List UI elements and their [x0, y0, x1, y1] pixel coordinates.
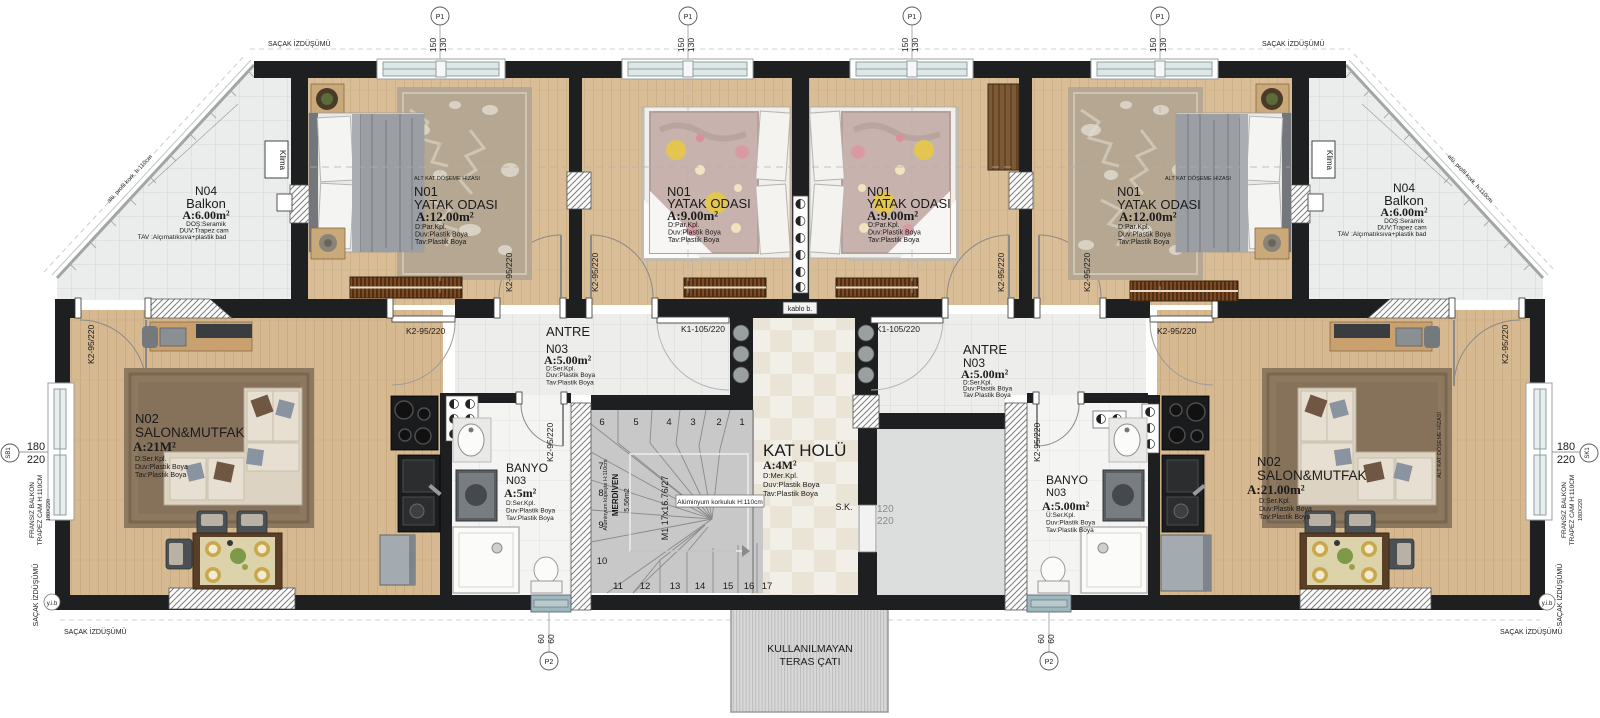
svg-text:ANTRE: ANTRE — [546, 324, 590, 339]
svg-text:K2-95/220: K2-95/220 — [1157, 326, 1196, 336]
svg-text:Tav:Plastik Boya: Tav:Plastik Boya — [868, 237, 919, 244]
svg-text:15: 15 — [723, 581, 734, 592]
svg-text:60: 60 — [536, 634, 546, 644]
svg-text:A:6.00m²: A:6.00m² — [182, 208, 230, 222]
svg-text:180X220: 180X220 — [1578, 499, 1584, 521]
svg-text:SAÇAK İZDÜŞÜMÜ: SAÇAK İZDÜŞÜMÜ — [1262, 39, 1325, 48]
svg-text:120: 120 — [877, 504, 894, 515]
svg-text:K2-95/220: K2-95/220 — [1500, 325, 1510, 364]
svg-text:TAV :Alçımatıksıva+plastik bad: TAV :Alçımatıksıva+plastik bad — [138, 234, 227, 241]
svg-text:K2-95/220: K2-95/220 — [1082, 253, 1092, 292]
svg-text:TAV :Alçımatıksıva+plastik bad: TAV :Alçımatıksıva+plastik bad — [1338, 231, 1427, 238]
svg-text:S.K.: S.K. — [835, 502, 852, 512]
svg-text:Duv:Plastik Boya: Duv:Plastik Boya — [506, 508, 556, 515]
svg-text:Tav:Plastik Boya: Tav:Plastik Boya — [1046, 527, 1094, 534]
svg-text:SK1: SK1 — [1585, 447, 1591, 459]
svg-text:y.i.b: y.i.b — [1542, 601, 1553, 607]
svg-text:D:Ser.Kpl.: D:Ser.Kpl. — [135, 456, 167, 463]
svg-text:K1-105/220: K1-105/220 — [681, 324, 725, 334]
svg-text:14: 14 — [695, 581, 706, 592]
svg-text:KULLANILMAYAN: KULLANILMAYAN — [767, 643, 852, 655]
svg-text:D:Ser.Kpl.: D:Ser.Kpl. — [506, 500, 535, 507]
svg-text:220: 220 — [27, 454, 45, 466]
svg-text:SAÇAK İZDÜŞÜMÜ: SAÇAK İZDÜŞÜMÜ — [31, 564, 40, 627]
svg-text:Tav:Plastik Boya: Tav:Plastik Boya — [1259, 514, 1310, 521]
svg-text:Tav:Plastik Boya: Tav:Plastik Boya — [1118, 239, 1169, 246]
svg-text:P1: P1 — [908, 14, 917, 21]
svg-text:A:12.00m²: A:12.00m² — [1119, 209, 1177, 224]
svg-text:16: 16 — [744, 581, 755, 592]
svg-text:K2-95/220: K2-95/220 — [590, 253, 600, 292]
svg-text:10: 10 — [597, 556, 608, 567]
svg-text:TRAPEZ CAM H:110CM: TRAPEZ CAM H:110CM — [1569, 475, 1576, 546]
svg-text:ANTRE: ANTRE — [963, 342, 1007, 357]
svg-text:5.56m2: 5.56m2 — [624, 488, 631, 511]
svg-text:Duv:Plastik Boya: Duv:Plastik Boya — [1259, 506, 1312, 513]
svg-text:BANYO: BANYO — [506, 461, 548, 475]
svg-text:N02: N02 — [135, 411, 159, 426]
svg-text:130: 130 — [686, 38, 696, 52]
svg-text:D:Par.Kpl.: D:Par.Kpl. — [415, 224, 447, 231]
svg-text:6: 6 — [599, 417, 604, 428]
svg-text:A:4M²: A:4M² — [763, 458, 797, 472]
svg-text:11: 11 — [613, 581, 623, 592]
svg-text:Klima: Klima — [1325, 150, 1334, 171]
svg-text:13: 13 — [670, 581, 681, 592]
svg-text:SAÇAK İZDÜŞÜMÜ: SAÇAK İZDÜŞÜMÜ — [268, 39, 331, 48]
svg-text:SALON&MUTFAK: SALON&MUTFAK — [135, 425, 245, 440]
svg-text:Tav:Plastik Boya: Tav:Plastik Boya — [546, 380, 594, 387]
svg-text:N02: N02 — [1257, 454, 1281, 469]
svg-text:2: 2 — [716, 417, 721, 428]
svg-text:kablo b.: kablo b. — [788, 306, 813, 313]
svg-text:D:Mer.Kpl.: D:Mer.Kpl. — [763, 471, 798, 480]
svg-text:150: 150 — [1148, 38, 1158, 52]
svg-text:130: 130 — [910, 38, 920, 52]
svg-text:ALT KAT DÖŞEME HİZASI: ALT KAT DÖŞEME HİZASI — [414, 175, 480, 182]
svg-text:Tav:Plastik Boya: Tav:Plastik Boya — [415, 239, 466, 246]
svg-text:FRANSIZ BALKON: FRANSIZ BALKON — [1561, 482, 1568, 538]
svg-text:Alüminyum korkuluk H:110cm: Alüminyum korkuluk H:110cm — [677, 499, 763, 506]
svg-text:60: 60 — [546, 634, 556, 644]
svg-text:A:21M²: A:21M² — [133, 439, 176, 454]
svg-text:K2-95/220: K2-95/220 — [1032, 423, 1042, 462]
svg-text:12: 12 — [640, 581, 651, 592]
svg-text:60: 60 — [1036, 634, 1046, 644]
svg-text:180: 180 — [1557, 441, 1575, 453]
svg-text:A:12.00m²: A:12.00m² — [416, 209, 474, 224]
svg-text:180X220: 180X220 — [46, 499, 52, 521]
svg-text:M1 17x16.76/27: M1 17x16.76/27 — [660, 476, 670, 541]
svg-text:Tav:Plastik Boya: Tav:Plastik Boya — [668, 237, 719, 244]
svg-text:A:9.00m²: A:9.00m² — [867, 208, 918, 223]
svg-text:Ü:Ser.Kpl.: Ü:Ser.Kpl. — [1046, 511, 1075, 519]
svg-text:150: 150 — [428, 38, 438, 52]
svg-text:A:5m²: A:5m² — [504, 486, 537, 500]
svg-text:Tav:Plastik Boya: Tav:Plastik Boya — [963, 392, 1011, 399]
svg-text:P1: P1 — [684, 14, 693, 21]
svg-text:FRANSIZ BALKON: FRANSIZ BALKON — [29, 482, 36, 538]
svg-text:MERDİVEN: MERDİVEN — [611, 474, 620, 516]
svg-text:ALT KAT DÖŞEME HİZASI: ALT KAT DÖŞEME HİZASI — [1165, 175, 1231, 182]
svg-text:60: 60 — [1046, 634, 1056, 644]
svg-text:D:Ser.Kpl.: D:Ser.Kpl. — [1259, 498, 1291, 505]
svg-text:K2-95/220: K2-95/220 — [545, 423, 555, 462]
svg-text:SALON&MUTFAK: SALON&MUTFAK — [1257, 468, 1367, 483]
svg-text:D:Par.Kpl.: D:Par.Kpl. — [668, 222, 700, 229]
svg-text:D:Par.Kpl.: D:Par.Kpl. — [868, 222, 900, 229]
svg-text:D:Par.Kpl.: D:Par.Kpl. — [1118, 224, 1150, 231]
svg-text:BANYO: BANYO — [1046, 473, 1088, 487]
svg-text:150: 150 — [900, 38, 910, 52]
svg-text:y.i.b: y.i.b — [47, 601, 58, 607]
svg-text:P1: P1 — [436, 14, 445, 21]
svg-text:K2-95/220: K2-95/220 — [504, 253, 514, 292]
svg-text:Tav:Plastik Boya: Tav:Plastik Boya — [135, 472, 186, 479]
svg-text:SB1: SB1 — [6, 447, 12, 459]
svg-text:Tav:Plastik Boya: Tav:Plastik Boya — [763, 489, 819, 498]
svg-text:A:6.00m²: A:6.00m² — [1380, 205, 1428, 219]
svg-text:220: 220 — [1557, 454, 1575, 466]
svg-text:P1: P1 — [1156, 14, 1165, 21]
svg-text:K1-105/220: K1-105/220 — [876, 324, 920, 334]
svg-text:K2-95/220: K2-95/220 — [86, 325, 96, 364]
svg-text:Duv:Plastik Boya: Duv:Plastik Boya — [1118, 232, 1171, 239]
svg-text:N03: N03 — [1046, 487, 1066, 499]
svg-text:SAÇAK İZDÜŞÜMÜ: SAÇAK İZDÜŞÜMÜ — [64, 627, 127, 636]
svg-text:Tav:Plastik Boya: Tav:Plastik Boya — [506, 515, 554, 522]
svg-text:SAÇAK İZDÜŞÜMÜ: SAÇAK İZDÜŞÜMÜ — [1500, 627, 1563, 636]
svg-text:150: 150 — [676, 38, 686, 52]
svg-text:A:9.00m²: A:9.00m² — [667, 208, 718, 223]
svg-text:A:5.00m²: A:5.00m² — [1042, 499, 1090, 513]
svg-text:P2: P2 — [1045, 659, 1054, 666]
svg-text:TRAPEZ CAM H:110CM: TRAPEZ CAM H:110CM — [37, 475, 44, 546]
svg-text:A:21.00m²: A:21.00m² — [1247, 482, 1305, 497]
svg-text:Duv:Plastik Boya: Duv:Plastik Boya — [1046, 520, 1096, 527]
svg-text:4: 4 — [666, 417, 671, 428]
svg-text:5: 5 — [633, 417, 638, 428]
svg-text:SAÇAK İZDÜŞÜMÜ: SAÇAK İZDÜŞÜMÜ — [1555, 564, 1564, 627]
svg-text:K2-95/220: K2-95/220 — [996, 253, 1006, 292]
svg-text:1: 1 — [739, 417, 744, 428]
svg-text:Duv:Plastik Boya: Duv:Plastik Boya — [546, 372, 596, 379]
svg-text:Duv:Plastik Boya: Duv:Plastik Boya — [668, 230, 721, 237]
svg-text:17: 17 — [762, 581, 773, 592]
svg-text:Duv:Plastik Boya: Duv:Plastik Boya — [763, 480, 821, 489]
svg-text:3: 3 — [690, 417, 695, 428]
svg-text:130: 130 — [1158, 38, 1168, 52]
svg-text:TERAS ÇATI: TERAS ÇATI — [779, 656, 840, 668]
svg-text:180: 180 — [27, 441, 45, 453]
svg-text:K2-95/220: K2-95/220 — [406, 326, 445, 336]
svg-text:Klima: Klima — [278, 150, 287, 171]
svg-text:Duv:Plastik Boya: Duv:Plastik Boya — [135, 464, 188, 471]
svg-text:220: 220 — [877, 516, 894, 527]
svg-text:P2: P2 — [545, 659, 554, 666]
svg-text:Duv:Plastik Boya: Duv:Plastik Boya — [415, 232, 468, 239]
svg-text:ALT KAT DÖŞEME HİZASİ: ALT KAT DÖŞEME HİZASİ — [1436, 412, 1443, 478]
svg-text:Duv:Plastik Boya: Duv:Plastik Boya — [868, 230, 921, 237]
svg-text:Alüminyum küpeşte H:110cm: Alüminyum küpeşte H:110cm — [603, 459, 609, 531]
svg-text:130: 130 — [438, 38, 448, 52]
